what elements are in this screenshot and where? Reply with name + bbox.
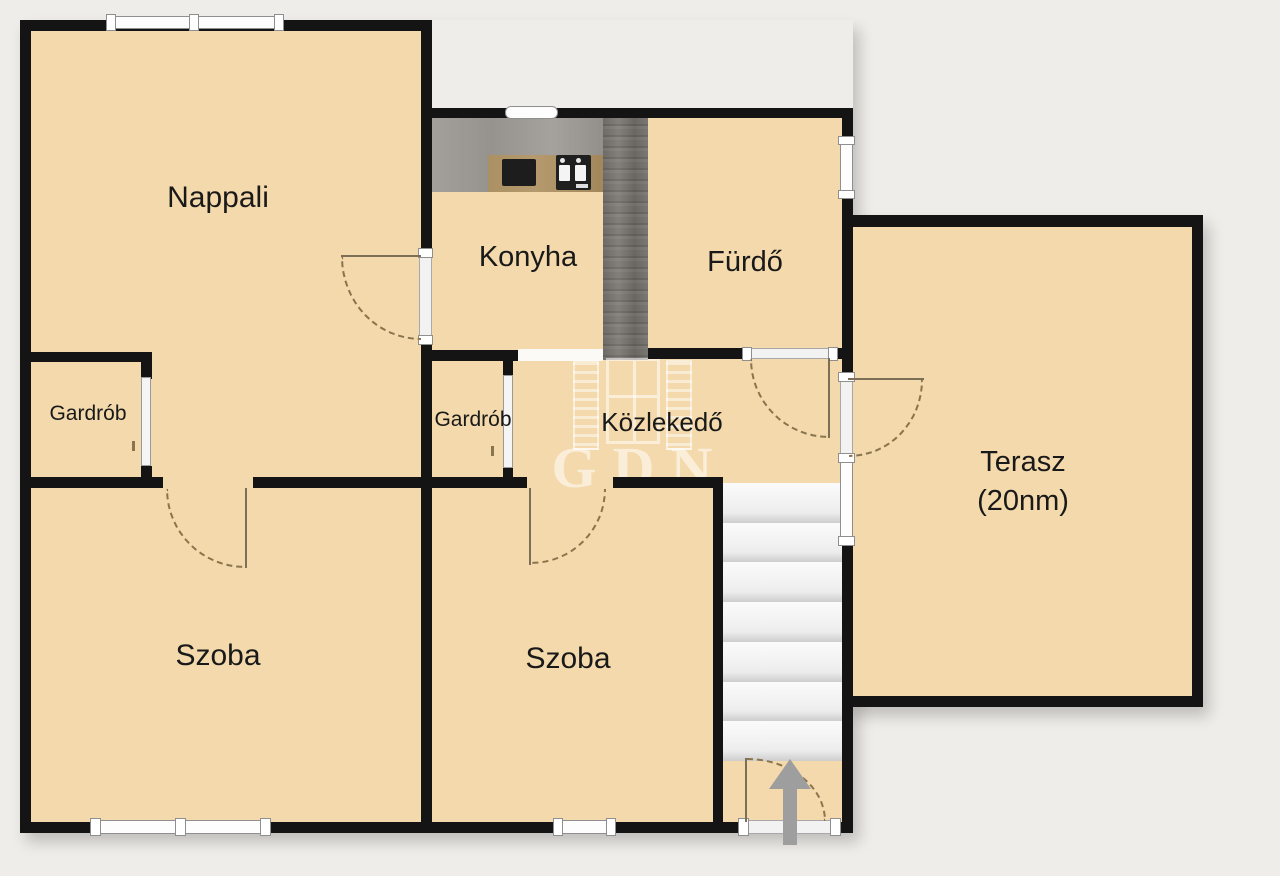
window-cap xyxy=(274,14,284,31)
wall-outer-right-lower xyxy=(842,543,853,833)
wall-furdo-bottom-left xyxy=(648,348,745,359)
room-label-konyha: Konyha xyxy=(428,241,628,274)
wall-mid-left xyxy=(20,477,163,488)
room-label-szoba-1: Szoba xyxy=(118,639,318,673)
sink-basin xyxy=(559,165,570,181)
room-label-kozlekedo: Közlekedő xyxy=(558,407,766,438)
wall-gardrob1-right-upper xyxy=(141,352,152,379)
room-label-terasz: Terasz (20nm) xyxy=(920,443,1126,521)
room-label-terasz-area: (20nm) xyxy=(920,482,1126,521)
kitchen-sink-icon xyxy=(556,155,591,190)
konyha-opening-threshold xyxy=(518,349,603,361)
staircase xyxy=(723,483,842,761)
room-label-furdo: Fürdő xyxy=(647,246,843,279)
wall-outer-left xyxy=(20,20,31,833)
room-label-gardrob-1: Gardrób xyxy=(28,402,148,426)
wall-stairhall-left xyxy=(713,477,723,833)
stair-tread xyxy=(723,721,842,761)
stairhall-window xyxy=(840,456,853,544)
wall-szoba-divider xyxy=(421,477,432,833)
furdo-window xyxy=(840,139,853,193)
faucet-icon xyxy=(576,158,581,163)
door-marker xyxy=(491,446,494,456)
stair-tread xyxy=(723,562,842,602)
window-cap xyxy=(106,14,116,31)
stair-tread xyxy=(723,523,842,563)
sink-mark xyxy=(576,184,588,188)
wall-terasz-top xyxy=(848,215,1203,227)
room-label-terasz-name: Terasz xyxy=(920,443,1126,482)
furdo-door-jamb xyxy=(745,348,833,359)
wall-terasz-right xyxy=(1192,215,1203,707)
wall-gardrob1-top xyxy=(20,352,152,362)
faucet-icon xyxy=(560,158,565,163)
wall-nappali-konyha-upper xyxy=(421,20,432,253)
wall-gardrob2-right-lower xyxy=(503,468,513,488)
wall-konyha-furdo-top xyxy=(421,108,853,118)
window-cap xyxy=(189,14,199,31)
wall-mid-right xyxy=(613,477,722,488)
entrance-arrow-icon xyxy=(769,759,811,789)
window-cap xyxy=(606,818,616,836)
door-marker xyxy=(132,441,135,451)
wall-terasz-bottom xyxy=(848,696,1203,707)
room-label-nappali: Nappali xyxy=(118,181,318,215)
wall-gardrob2-right-upper xyxy=(503,352,513,377)
floor-left-wing xyxy=(25,25,432,828)
wood-divider-wall xyxy=(603,113,648,360)
room-label-szoba-2: Szoba xyxy=(468,642,668,676)
window-cap xyxy=(838,536,855,546)
window-cap xyxy=(175,818,186,836)
room-label-gardrob-2: Gardrób xyxy=(414,408,532,432)
szoba2-window xyxy=(556,820,613,834)
window-cap xyxy=(838,136,855,145)
window-cap xyxy=(838,190,855,199)
window-cap xyxy=(260,818,271,836)
szoba1-door-leaf xyxy=(245,488,247,568)
cooktop-icon xyxy=(502,159,536,186)
stair-tread xyxy=(723,682,842,722)
window-cap xyxy=(90,818,101,836)
stair-tread xyxy=(723,642,842,682)
window-cap xyxy=(553,818,563,836)
stair-tread xyxy=(723,602,842,642)
entrance-arrow-shaft xyxy=(783,788,797,845)
sink-basin xyxy=(575,165,586,181)
door-cap xyxy=(830,818,841,836)
floor-plan-page: { "plan": { "type": "floor-plan", "water… xyxy=(0,0,1280,876)
wall-mid-center xyxy=(253,477,527,488)
konyha-window xyxy=(505,106,558,119)
